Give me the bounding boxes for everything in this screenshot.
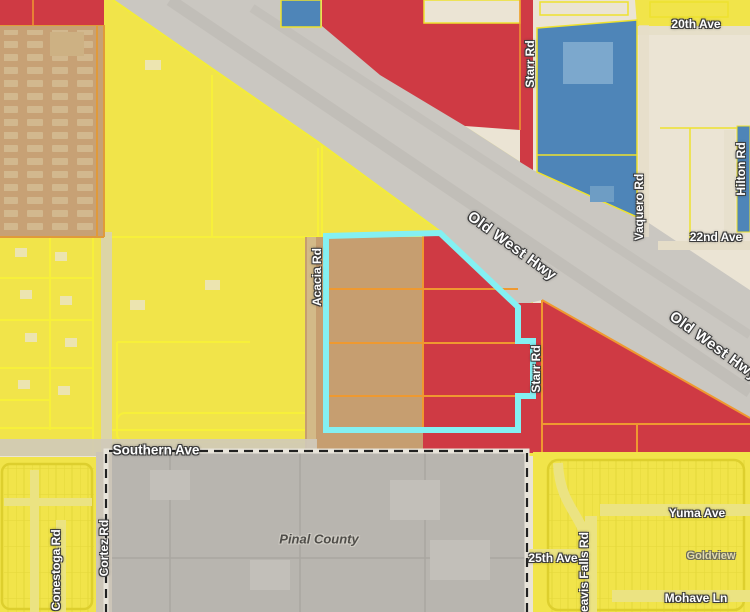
road-22nd-ave [658,241,750,250]
zone-yellow-topright [635,0,750,30]
zone-blue-strip-right [737,126,750,232]
zone-tan-parcel [305,237,423,453]
zone-red-topleft [0,0,104,25]
trailer-rows [4,30,100,232]
map-canvas[interactable]: 20th Ave Starr Rd Vaquero Rd Hilton Rd 2… [0,0,750,612]
park-building [50,32,84,56]
parcel-cream-inset [424,0,520,23]
lots-left [4,464,94,612]
road-vaquero [639,25,649,237]
map-layers [0,0,750,612]
road-acacia [307,237,316,453]
blue-zone-building-2 [590,186,614,202]
zone-blue-small [281,0,321,27]
road-hilton [724,130,735,240]
lots-right [548,460,745,612]
road-vertical-left [101,232,112,456]
blue-zone-building [563,42,613,84]
